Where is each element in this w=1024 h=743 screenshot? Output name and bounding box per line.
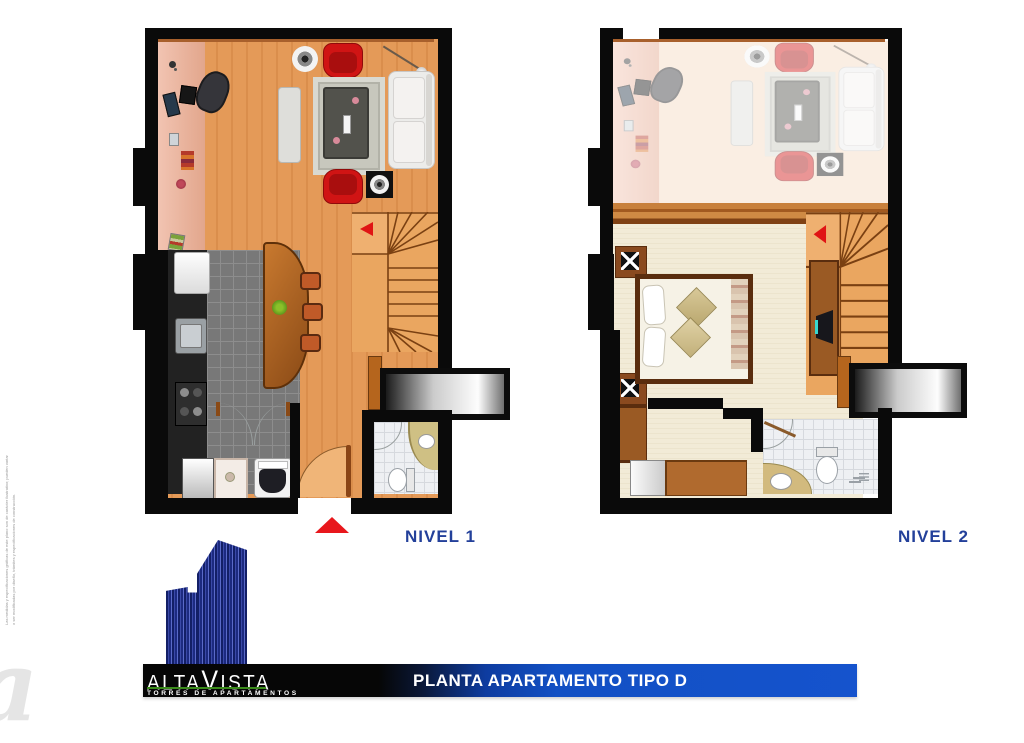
- wall-right-upper: [438, 28, 452, 368]
- living-room-set: [158, 41, 438, 231]
- balcony-level2: [849, 363, 967, 418]
- banner-title: PLANTA APARTAMENTO TIPO D: [413, 664, 687, 697]
- console-bench-icon: [278, 87, 301, 163]
- floor-lamp-icon: [383, 45, 421, 70]
- shelf-books-icon: [181, 151, 194, 170]
- wall-bottom: [600, 498, 892, 514]
- stairs-level1: [352, 212, 438, 352]
- logo-tower-small: [166, 587, 197, 665]
- toilet-icon: [388, 466, 416, 492]
- bed: [635, 274, 753, 384]
- corner-watermark: a: [0, 630, 38, 743]
- washing-machine-icon: [254, 458, 292, 498]
- flower-decor-icon: [333, 137, 340, 144]
- wall-bed-bath-a: [648, 398, 723, 409]
- wall-stub-kitchen: [290, 403, 300, 498]
- desk-monitor-icon: [162, 92, 180, 117]
- dining-chair-icon: [300, 334, 321, 352]
- wall-right-upper: [888, 28, 902, 363]
- window-sill: [158, 39, 434, 42]
- wall-top: [150, 28, 442, 39]
- wall-stub-bath: [362, 422, 374, 498]
- speaker-icon: [292, 46, 318, 72]
- fine-print-disclaimer: Las medidas y especificaciones gráficas …: [4, 455, 18, 625]
- logo-tagline: TORRES DE APARTAMENTOS: [147, 690, 299, 697]
- armchair-red-bottom: [323, 169, 363, 204]
- bathroom-level1-floor: [374, 422, 438, 494]
- wall-bottom-right: [351, 498, 452, 514]
- remote-icon: [343, 115, 351, 134]
- poster-canvas: { "banner": { "text": "PLANTA APARTAMENT…: [0, 0, 1024, 717]
- armchair-red-top: [323, 43, 363, 78]
- fridge-icon: [174, 252, 210, 294]
- sofa: [388, 71, 435, 169]
- void-ghost-overlay: [613, 41, 891, 205]
- dining-chair-icon: [302, 303, 323, 321]
- bed-runner: [731, 279, 748, 369]
- vanity-counter: [763, 463, 812, 494]
- subwoofer-icon: [366, 171, 393, 198]
- kitchen-sink-icon: [175, 318, 207, 354]
- level2-void-living-view: [613, 41, 891, 205]
- table-plant-icon: [272, 300, 287, 315]
- sink-icon: [770, 473, 792, 490]
- entry-arrow: [315, 517, 349, 533]
- logo-tower-large: [197, 540, 247, 665]
- wall-bed-bath-stub: [751, 408, 763, 452]
- stove-icon: [175, 382, 207, 426]
- wall-top-opening: [623, 28, 659, 39]
- cushion-icon: [676, 287, 717, 328]
- study-strip-extension: [158, 231, 205, 251]
- shower-seat: [408, 422, 438, 470]
- tv-cabinet: [809, 260, 839, 376]
- toilet-icon: [813, 447, 839, 487]
- column-x-icon: [621, 252, 639, 270]
- entry-door-leaf: [346, 445, 351, 497]
- window-sill: [613, 39, 885, 42]
- cushion-icon: [670, 317, 711, 358]
- wall-niche-shelf: [182, 458, 214, 500]
- closet-door-jamb: [216, 402, 220, 416]
- closet-wood: [665, 460, 747, 496]
- wall-left-notch: [588, 148, 600, 206]
- wall-left-thick: [145, 359, 168, 498]
- flower-decor-icon: [352, 97, 359, 104]
- desk-phone-icon: [169, 133, 179, 146]
- shower-faucet-icon: [849, 481, 861, 483]
- pillow-icon: [642, 326, 667, 367]
- coffee-table-icon: [323, 87, 369, 159]
- desk-lamp-icon: [169, 61, 176, 68]
- floorplan-level2: [585, 26, 965, 521]
- laundry-sink-icon: [214, 458, 248, 500]
- wall-left-thick: [600, 330, 620, 498]
- area-rug: [313, 77, 385, 175]
- desk-laptop-icon: [179, 85, 197, 105]
- title-banner: ALTAVISTA TORRES DE APARTAMENTOS PLANTA …: [143, 664, 857, 697]
- closet-white: [630, 460, 667, 496]
- wall-right-lower: [878, 408, 892, 498]
- floorplan-level1: [130, 26, 510, 521]
- wall-right-lower: [438, 410, 452, 498]
- bathroom-level2-floor: [763, 419, 878, 494]
- dining-chair-icon: [300, 272, 321, 290]
- bath-door-swing: [374, 422, 402, 450]
- level2-label: NIVEL 2: [898, 527, 969, 547]
- pillow-icon: [642, 284, 667, 325]
- level1-label: NIVEL 1: [405, 527, 476, 547]
- wall-left-notch: [588, 254, 614, 330]
- wall-left-notch: [133, 148, 145, 206]
- wall-bottom-left: [145, 498, 298, 514]
- wall-left-notch: [133, 254, 159, 330]
- tv-screen-glow: [815, 320, 818, 334]
- vase-flowers-icon: [176, 179, 186, 189]
- study-strip: [158, 41, 205, 231]
